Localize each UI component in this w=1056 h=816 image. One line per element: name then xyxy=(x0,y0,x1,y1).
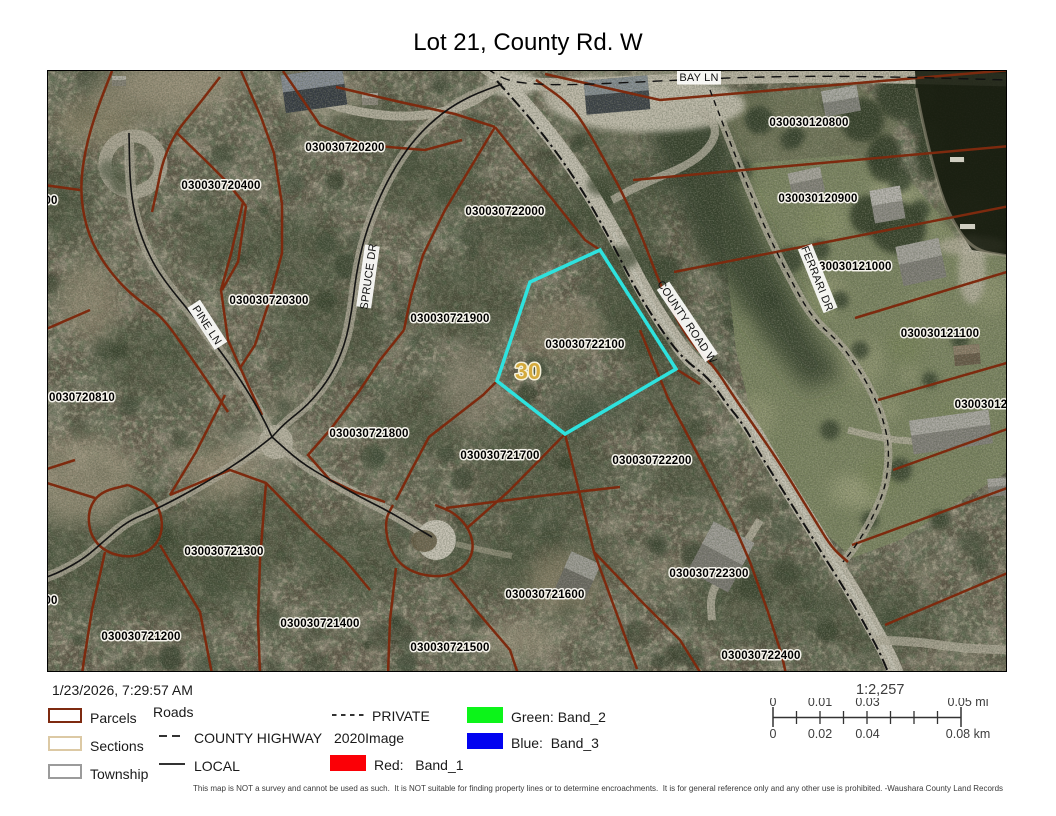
svg-text:0.02: 0.02 xyxy=(808,727,832,741)
svg-text:030030120800: 030030120800 xyxy=(769,117,848,129)
svg-text:030030121000: 030030121000 xyxy=(812,261,891,273)
svg-text:0.08 km: 0.08 km xyxy=(946,727,990,741)
svg-text:030030721700: 030030721700 xyxy=(460,450,539,462)
svg-text:030030721400: 030030721400 xyxy=(280,618,359,630)
svg-text:030030720300: 030030720300 xyxy=(229,295,308,307)
svg-text:030030721600: 030030721600 xyxy=(505,589,584,601)
svg-text:030030722200: 030030722200 xyxy=(612,455,691,467)
svg-text:030030721300: 030030721300 xyxy=(184,546,263,558)
svg-text:BAY LN: BAY LN xyxy=(679,72,718,84)
svg-text:0: 0 xyxy=(770,698,777,709)
svg-text:030030722000: 030030722000 xyxy=(465,206,544,218)
svg-text:030030722300: 030030722300 xyxy=(669,568,748,580)
svg-text:0: 0 xyxy=(770,727,777,741)
svg-text:03003012: 03003012 xyxy=(955,399,1006,411)
svg-text:0.04: 0.04 xyxy=(855,727,879,741)
svg-text:030030722400: 030030722400 xyxy=(721,650,800,662)
svg-text:030030721200: 030030721200 xyxy=(101,631,180,643)
svg-text:0030720810: 0030720810 xyxy=(49,392,115,404)
svg-text:030030721800: 030030721800 xyxy=(329,428,408,440)
svg-text:030030720400: 030030720400 xyxy=(181,180,260,192)
svg-text:00: 00 xyxy=(48,595,58,607)
svg-text:030030720200: 030030720200 xyxy=(305,142,384,154)
svg-text:030030721900: 030030721900 xyxy=(410,313,489,325)
svg-text:0.01: 0.01 xyxy=(808,698,832,709)
svg-text:0.03: 0.03 xyxy=(855,698,879,709)
svg-text:030030120900: 030030120900 xyxy=(778,193,857,205)
svg-text:030030722100: 030030722100 xyxy=(545,339,624,351)
svg-text:0.05 mi: 0.05 mi xyxy=(948,698,989,709)
svg-text:30: 30 xyxy=(515,358,541,384)
svg-text:030030721500: 030030721500 xyxy=(410,642,489,654)
svg-text:00: 00 xyxy=(48,195,58,207)
svg-text:030030121100: 030030121100 xyxy=(901,328,980,340)
